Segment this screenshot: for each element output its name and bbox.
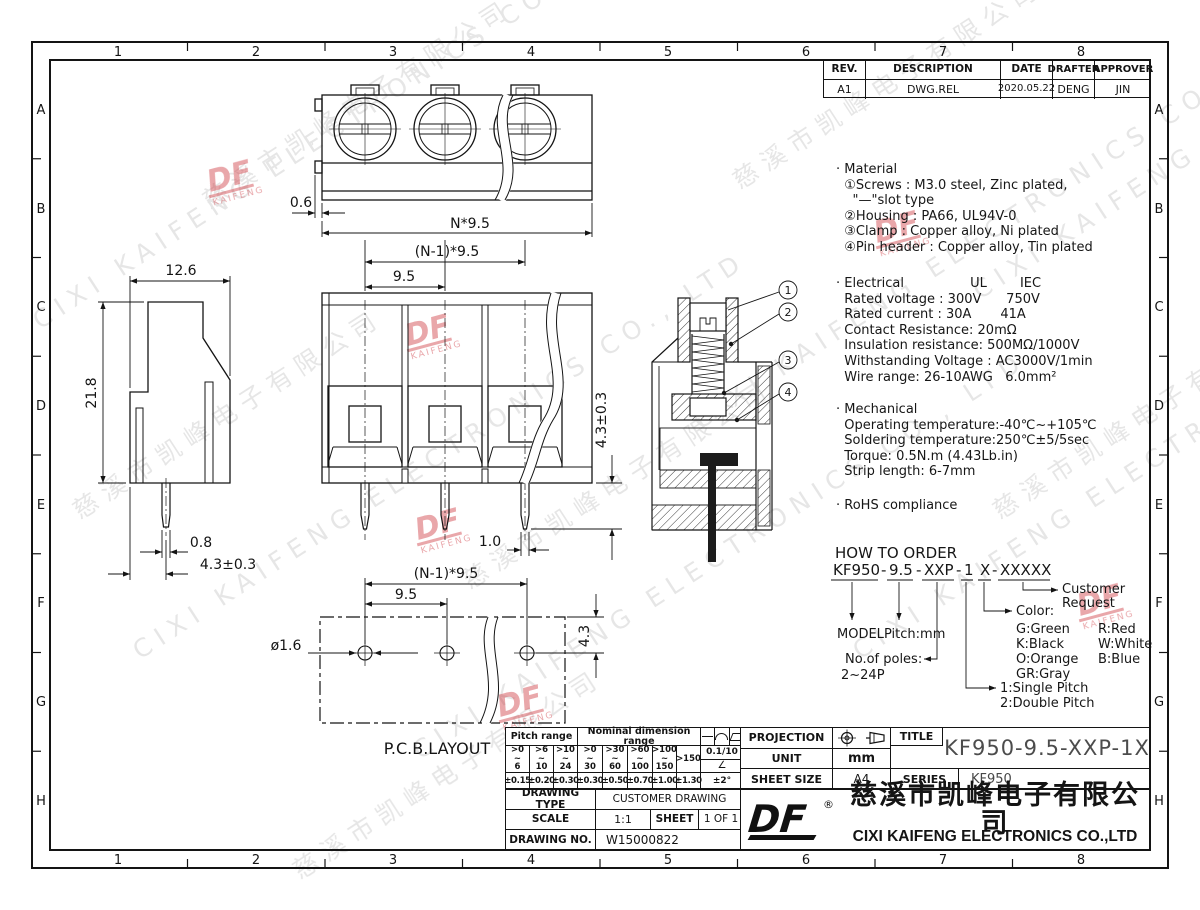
svg-text:-: - — [956, 561, 961, 579]
svg-text:2:Double Pitch: 2:Double Pitch — [1000, 696, 1095, 711]
svg-text:1:Single Pitch: 1:Single Pitch — [1000, 681, 1088, 696]
tol-cell: ±0.50 — [603, 773, 628, 790]
svg-text:A: A — [1155, 103, 1164, 118]
engineering-drawing-sheet: CIXI KAIFENG ELECTRONICS CO., LTD CIXI K… — [0, 0, 1200, 910]
revision-value: A1 — [824, 80, 866, 99]
svg-text:-: - — [916, 561, 921, 579]
range-cell: >10 ~ 24 — [554, 746, 578, 773]
svg-text:(N-1)*9.5: (N-1)*9.5 — [414, 566, 479, 582]
unit-value: mm — [833, 749, 891, 769]
front-view — [322, 293, 592, 540]
revision-value: DENG — [1053, 80, 1095, 99]
range-cell: >6 ~ 10 — [530, 746, 554, 773]
projection-label: PROJECTION — [741, 728, 833, 749]
pole-window — [408, 300, 482, 540]
drawing-no-value: W15000822 — [596, 830, 743, 851]
sheet-size-label: SHEET SIZE — [741, 769, 833, 790]
svg-text:G: G — [1154, 695, 1164, 710]
pcb-layout — [308, 578, 604, 723]
angle-icon: ∠ — [701, 760, 743, 773]
svg-text:D: D — [36, 399, 46, 414]
svg-text:3: 3 — [389, 45, 397, 60]
svg-text:9.5: 9.5 — [395, 587, 417, 603]
svg-text:X: X — [980, 561, 990, 579]
svg-text:B:Blue: B:Blue — [1098, 652, 1140, 667]
break-line — [495, 95, 513, 200]
svg-text:-: - — [881, 561, 886, 579]
svg-text:-: - — [992, 561, 997, 579]
pole-window — [328, 300, 402, 540]
pitch-range-header: Pitch range — [506, 728, 578, 746]
revision-header: DRAFTER — [1053, 61, 1095, 80]
svg-text:4.3±0.3: 4.3±0.3 — [594, 392, 610, 448]
svg-text:K:Black: K:Black — [1016, 637, 1065, 652]
revision-header: DESCRIPTION — [866, 61, 1001, 80]
revision-header: REV. — [824, 61, 866, 80]
revision-header: APPROVER — [1095, 61, 1151, 80]
svg-text:12.6: 12.6 — [165, 263, 196, 279]
svg-text:C: C — [36, 300, 45, 315]
svg-text:A: A — [37, 103, 46, 118]
revision-value: 2020.05.22 — [1001, 80, 1053, 99]
svg-text:6: 6 — [802, 853, 810, 868]
svg-text:8: 8 — [1077, 45, 1085, 60]
drawing-title: KF950-9.5-XXP-1X — [943, 728, 1151, 769]
tol-cell: ±1.30 — [677, 773, 701, 790]
top-view-dimensions — [292, 175, 592, 291]
svg-text:G:Green: G:Green — [1016, 622, 1070, 637]
company-block: DF ® 慈溪市凯峰电子有限公司 CIXI KAIFENG ELECTRONIC… — [740, 789, 1150, 850]
order-title: HOW TO ORDER — [835, 544, 957, 562]
svg-text:21.8: 21.8 — [84, 377, 100, 408]
range-cell: >30 ~ 60 — [603, 746, 628, 773]
straightness-tolerance: 0.1/10 — [701, 746, 743, 760]
tol-cell: ±0.30 — [578, 773, 603, 790]
svg-text:ø1.6: ø1.6 — [271, 638, 302, 654]
tol-cell: ±0.70 — [628, 773, 653, 790]
svg-text:4: 4 — [527, 853, 535, 868]
svg-text:4: 4 — [785, 386, 792, 399]
svg-text:XXXXX: XXXXX — [1000, 561, 1051, 579]
svg-text:1: 1 — [964, 561, 974, 579]
order-pitch-label: Pitch:mm — [884, 627, 945, 642]
svg-text:2: 2 — [252, 853, 260, 868]
pcb-layout-label: P.C.B.LAYOUT — [384, 739, 491, 758]
range-cell: >0 ~ 30 — [578, 746, 603, 773]
side-view — [130, 302, 230, 536]
svg-text:9.5: 9.5 — [393, 269, 415, 285]
svg-text:5: 5 — [664, 853, 672, 868]
svg-text:G: G — [36, 695, 46, 710]
how-to-order: HOW TO ORDER KF950- 9.5- XXP- 1 X- XXXXX — [831, 544, 1152, 711]
screw-head — [409, 93, 481, 165]
svg-text:0.6: 0.6 — [290, 195, 312, 211]
drawing-type-label: DRAWING TYPE — [506, 790, 596, 810]
svg-text:O:Orange: O:Orange — [1016, 652, 1078, 667]
title-area: TITLE KF950-9.5-XXP-1X — [891, 728, 1151, 769]
svg-text:3: 3 — [389, 853, 397, 868]
break-line — [519, 293, 563, 483]
sheet-label: SHEET — [651, 810, 699, 830]
drawing-type-value: CUSTOMER DRAWING — [596, 790, 743, 810]
svg-text:H: H — [1154, 794, 1164, 809]
registered-mark: ® — [823, 798, 834, 811]
company-name-en: CIXI KAIFENG ELECTRONICS CO.,LTD — [839, 826, 1151, 848]
screw-head — [329, 93, 401, 165]
svg-text:Customer: Customer — [1062, 582, 1126, 597]
drawing-type-block: DRAWING TYPE CUSTOMER DRAWING SCALE 1:1 … — [505, 789, 742, 850]
svg-text:Request: Request — [1062, 596, 1115, 611]
range-cell: >150 — [677, 746, 701, 773]
arc-icon — [715, 728, 729, 745]
order-color-label: Color: — [1016, 604, 1054, 619]
svg-text:4.3±0.3: 4.3±0.3 — [200, 557, 256, 573]
svg-text:9.5: 9.5 — [889, 561, 913, 579]
electrical-notes: · Electrical UL IEC Rated voltage : 300V… — [836, 276, 1158, 385]
svg-text:(N-1)*9.5: (N-1)*9.5 — [415, 244, 480, 260]
straightness-icon — [701, 728, 715, 745]
svg-text:R:Red: R:Red — [1098, 622, 1136, 637]
revision-header: DATE — [1001, 61, 1053, 80]
svg-text:F: F — [1155, 596, 1162, 611]
revision-table: REV. DESCRIPTION DATE DRAFTER APPROVER A… — [823, 60, 1150, 98]
svg-text:1: 1 — [114, 45, 122, 60]
svg-text:1.0: 1.0 — [479, 534, 501, 550]
svg-text:6: 6 — [802, 45, 810, 60]
svg-text:H: H — [36, 794, 46, 809]
svg-text:XXP: XXP — [924, 561, 954, 579]
svg-text:F: F — [37, 596, 44, 611]
revision-value: DWG.REL — [866, 80, 1001, 99]
range-cell: >100 ~ 150 — [653, 746, 677, 773]
svg-text:2: 2 — [252, 45, 260, 60]
svg-text:B: B — [37, 202, 46, 217]
svg-text:2: 2 — [785, 306, 792, 319]
nominal-range-header: Nominal dimension range — [578, 728, 701, 746]
top-view-dim-text: 0.6 N*9.5 (N-1)*9.5 9.5 — [290, 195, 490, 285]
svg-text:7: 7 — [939, 853, 947, 868]
range-cell: >60 ~ 100 — [628, 746, 653, 773]
company-name-cn: 慈溪市凯峰电子有限公司 — [839, 792, 1151, 828]
sheet-value: 1 OF 1 — [699, 810, 743, 830]
order-poles-label: No.of poles: — [845, 652, 922, 667]
title-label: TITLE — [891, 728, 943, 746]
svg-text:W:White: W:White — [1098, 637, 1152, 652]
svg-text:0.8: 0.8 — [190, 535, 212, 551]
rohs-note: · RoHS compliance — [836, 498, 1158, 514]
angle-tolerance: ±2° — [701, 773, 743, 790]
svg-text:2~24P: 2~24P — [841, 668, 885, 683]
revision-value: JIN — [1095, 80, 1151, 99]
svg-text:4.3: 4.3 — [577, 625, 593, 647]
svg-text:KF950: KF950 — [833, 561, 880, 579]
tolerance-table: Pitch range Nominal dimension range >0 ~… — [505, 727, 742, 789]
drawing-no-label: DRAWING NO. — [506, 830, 596, 851]
tol-cell: ±1.00 — [653, 773, 677, 790]
scale-value: 1:1 — [596, 810, 651, 830]
pcb-dimensions — [308, 578, 604, 678]
company-logo: DF ® — [747, 796, 839, 846]
svg-text:DF: DF — [747, 797, 808, 841]
svg-text:4: 4 — [527, 45, 535, 60]
unit-label: UNIT — [741, 749, 833, 769]
svg-text:3: 3 — [785, 354, 792, 367]
svg-text:GR:Gray: GR:Gray — [1016, 667, 1070, 682]
svg-text:E: E — [37, 498, 45, 513]
svg-text:5: 5 — [664, 45, 672, 60]
tolerance-symbols — [701, 728, 743, 746]
section-view — [652, 298, 772, 562]
svg-text:7: 7 — [939, 45, 947, 60]
section-callout-numbers: 1 2 3 4 — [785, 284, 792, 399]
material-notes: · Material ①Screws : M3.0 steel, Zinc pl… — [836, 162, 1158, 256]
break-line — [480, 617, 499, 723]
svg-text:8: 8 — [1077, 853, 1085, 868]
svg-text:1: 1 — [114, 853, 122, 868]
projection-symbol-icon — [833, 728, 891, 749]
range-cell: >0 ~ 6 — [506, 746, 530, 773]
order-model-label: MODEL — [837, 627, 885, 642]
svg-text:1: 1 — [785, 284, 792, 297]
scale-label: SCALE — [506, 810, 596, 830]
svg-text:N*9.5: N*9.5 — [450, 216, 490, 232]
top-view — [315, 85, 592, 200]
mechanical-notes: · Mechanical Operating temperature:-40℃~… — [836, 402, 1158, 480]
